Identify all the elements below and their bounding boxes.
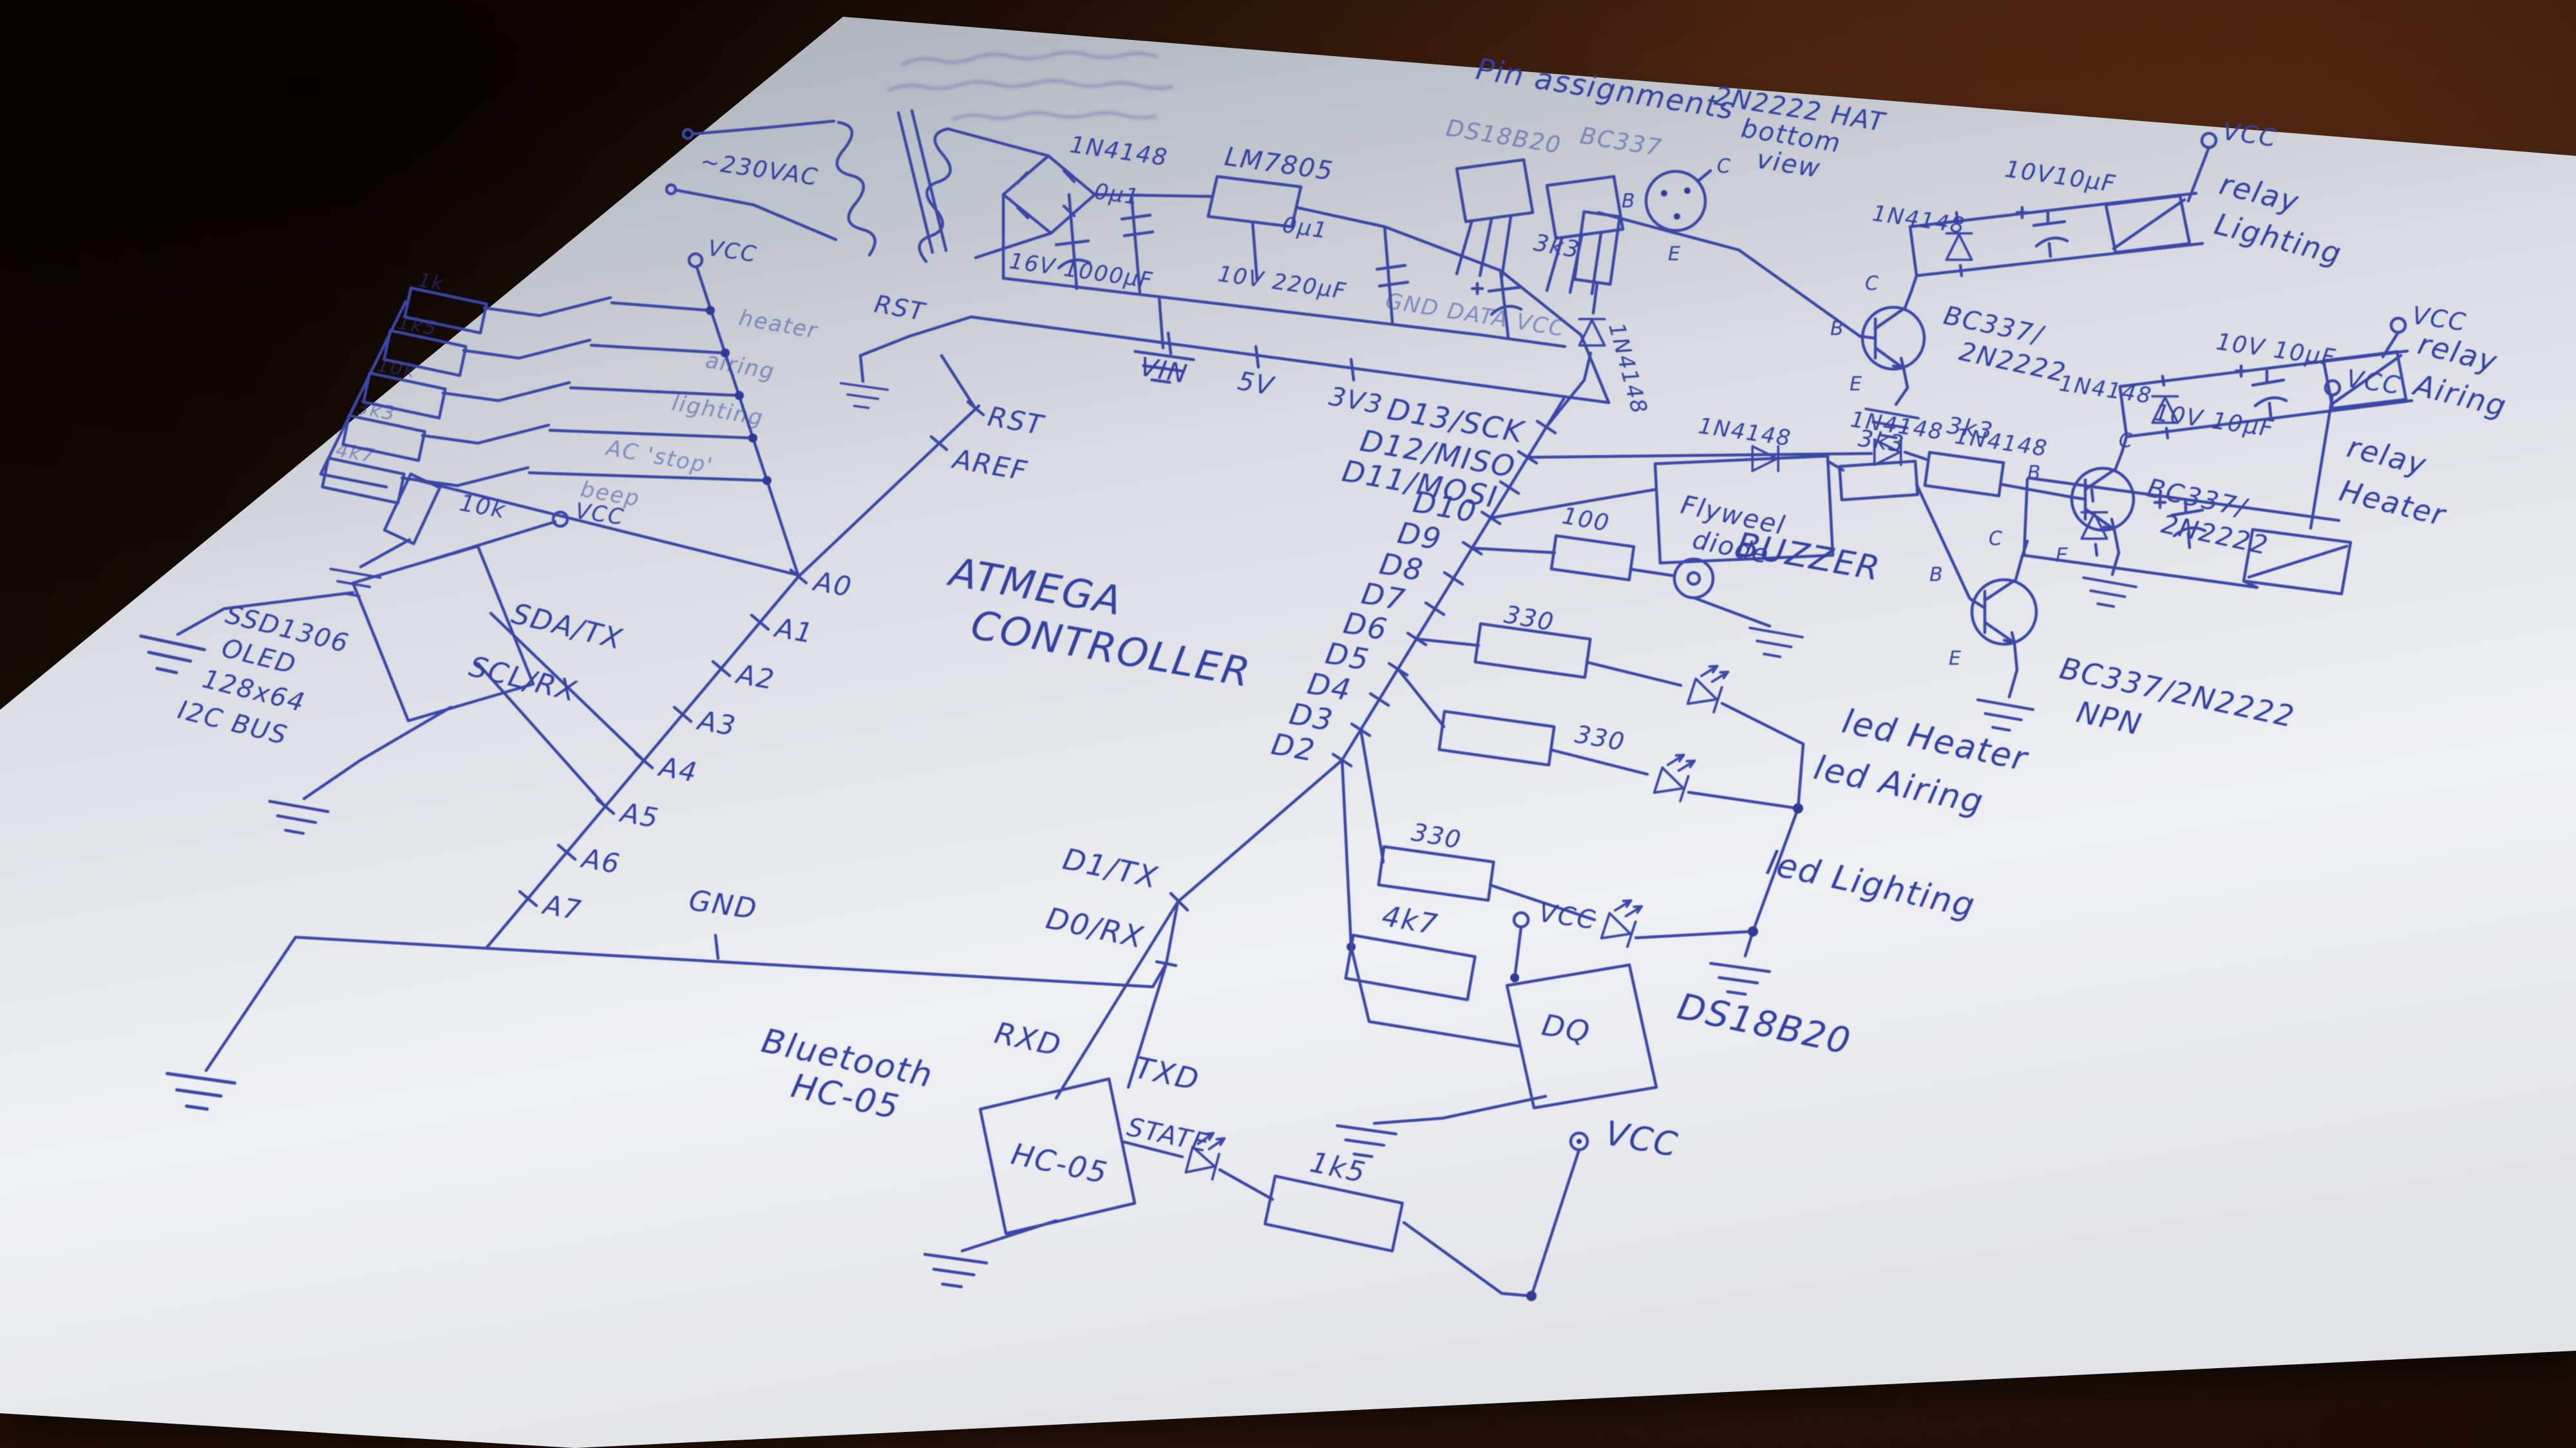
can-pin-c: C	[1717, 155, 1732, 178]
lighting-pin-e: E	[1850, 373, 1863, 395]
lighting-pin-c: C	[1865, 272, 1880, 295]
airing-pin-c: C	[2119, 430, 2134, 452]
lighting-pin-b: B	[1830, 318, 1845, 340]
airing-pin-e: E	[2056, 544, 2069, 567]
ladder-value-1: 1k	[417, 269, 446, 295]
heater-pin-e: E	[1949, 647, 1962, 670]
heater-pin-c: C	[1989, 528, 2003, 550]
ladder-value-2: 1k5	[396, 311, 439, 340]
airing-pin-b: B	[2027, 462, 2042, 484]
5v-label: 5V	[1235, 367, 1277, 402]
can-pin-e: E	[1668, 243, 1681, 265]
can-pin-b: B	[1622, 190, 1636, 213]
ladder-value-3: 10k	[375, 354, 419, 383]
wood-desk-background: Pin assignments DS18B20 GND DATA VCC BC3…	[0, 0, 2576, 1448]
heater-pin-b: B	[1929, 564, 1944, 586]
